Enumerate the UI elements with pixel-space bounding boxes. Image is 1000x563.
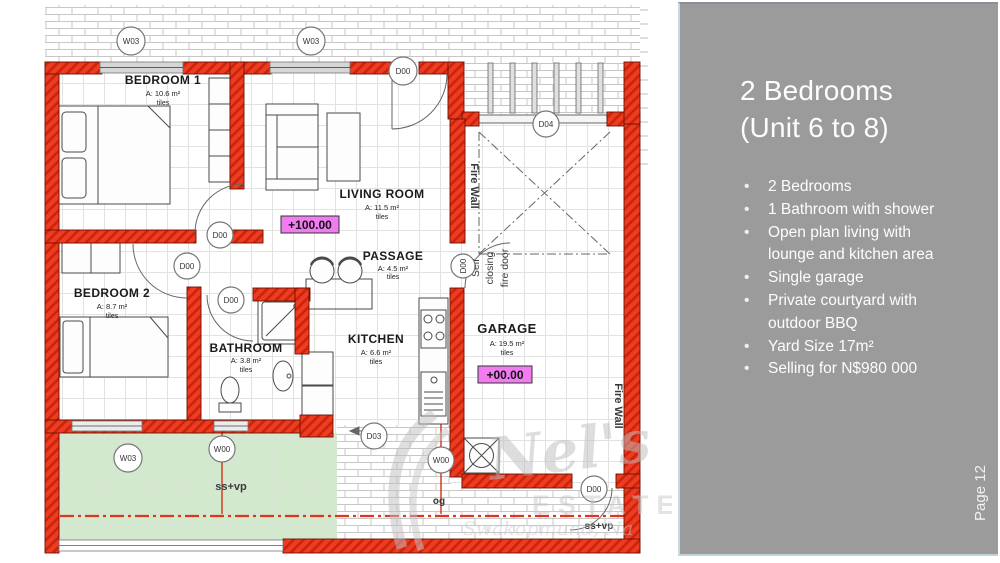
door-marker-d00: D00 [180,262,195,271]
window-marker-w00: W00 [433,456,450,465]
feature-text: Selling for N$980 000 [768,358,917,381]
window-marker-w00: W00 [214,445,231,454]
door-marker-d00: D00 [396,67,411,76]
list-item: •Single garage [744,267,990,290]
sofa [266,104,318,190]
bullet-dot: • [744,358,768,381]
wardrobe-bed1 [209,78,230,182]
coffee-table [327,113,360,181]
list-item: •Open plan living with [744,222,990,245]
og-label: og [433,496,445,507]
garage-area: A: 19.5 m² [490,339,525,348]
bathroom-name: BATHROOM [210,341,283,355]
feature-text: Single garage [768,267,864,290]
bedroom2-finish: tiles [106,313,119,320]
bedroom2-area: A: 8.7 m² [97,302,128,311]
list-item: •Private courtyard with [744,290,990,313]
door-marker-d00: D00 [459,258,468,273]
living-area: A: 11.5 m² [365,203,400,212]
list-item: outdoor BBQ [744,313,990,336]
wardrobe-bed2 [62,243,120,273]
bullet-dot: • [744,222,768,245]
toilet [219,377,241,412]
list-item: lounge and kitchen area [744,244,990,267]
list-item: •2 Bedrooms [744,176,990,199]
bedroom1-area: A: 10.6 m² [146,89,181,98]
bullet-dot [744,244,768,267]
garage-level-value: +00.00 [486,368,523,382]
bedroom1-finish: tiles [157,100,170,107]
passage-name: PASSAGE [363,249,424,263]
list-item: •Yard Size 17m² [744,336,990,359]
kitchen-finish: tiles [370,359,383,366]
list-item: •1 Bathroom with shower [744,199,990,222]
bathroom-area: A: 3.8 m² [231,356,262,365]
window-marker-w03: W03 [303,37,320,46]
floor-plan: BEDROOM 1 A: 10.6 m² tiles BEDROOM 2 A: … [0,0,672,563]
floor-plan-area: BEDROOM 1 A: 10.6 m² tiles BEDROOM 2 A: … [0,0,672,563]
basin [273,361,293,391]
feature-text: outdoor BBQ [768,313,858,336]
self-closing-line3: fire door [499,248,511,287]
door-marker-d00: D00 [213,231,228,240]
page-number: Page 12 [972,433,994,553]
kitchen-name: KITCHEN [348,332,404,346]
unit-title-line1: 2 Bedrooms [740,72,893,109]
info-panel: 2 Bedrooms (Unit 6 to 8) •2 Bedrooms •1 … [678,2,998,556]
passage-area: A: 4.5 m² [378,264,409,273]
door-marker-d00: D00 [224,296,239,305]
garage-name: GARAGE [477,321,536,336]
unit-title: 2 Bedrooms (Unit 6 to 8) [740,72,893,146]
bathroom-finish: tiles [240,367,253,374]
living-level-value: +100.00 [288,218,332,232]
garage-finish: tiles [501,350,514,357]
double-bed [58,106,170,204]
unit-title-line2: (Unit 6 to 8) [740,109,893,146]
feature-list: •2 Bedrooms •1 Bathroom with shower •Ope… [744,176,990,381]
feature-text: Yard Size 17m² [768,336,874,359]
feature-text: 1 Bathroom with shower [768,199,934,222]
watermark-estates: ESTATES [532,490,672,520]
bullet-dot: • [744,267,768,290]
laundry-units [302,352,333,416]
passage-finish: tiles [387,274,400,281]
living-finish: tiles [376,214,389,221]
bullet-dot: • [744,176,768,199]
feature-text: 2 Bedrooms [768,176,852,199]
kitchen-sink [421,372,446,416]
window-marker-w03: W03 [123,37,140,46]
door-marker-d03: D03 [367,432,382,441]
self-closing-line2: closing [484,251,496,284]
feature-text: lounge and kitchen area [768,244,933,267]
feature-text: Open plan living with [768,222,911,245]
bedroom1-name: BEDROOM 1 [125,73,201,87]
scale-ticks [640,10,648,164]
bullet-dot: • [744,199,768,222]
bedroom2-name: BEDROOM 2 [74,286,150,300]
bullet-dot: • [744,336,768,359]
bullet-dot [744,313,768,336]
slide: BEDROOM 1 A: 10.6 m² tiles BEDROOM 2 A: … [0,0,1000,563]
feature-text: Private courtyard with [768,290,917,313]
watermark-location: Swakopmund, Na [463,518,633,540]
fire-wall-label-left: Fire Wall [468,163,480,208]
living-name: LIVING ROOM [339,187,424,201]
single-bed [60,317,168,377]
ssvp-label-courtyard: ss+vp [215,481,247,493]
bullet-dot: • [744,290,768,313]
window-marker-w03: W03 [120,454,137,463]
door-marker-d04: D04 [539,120,554,129]
list-item: •Selling for N$980 000 [744,358,990,381]
kitchen-area: A: 6.6 m² [361,348,392,357]
